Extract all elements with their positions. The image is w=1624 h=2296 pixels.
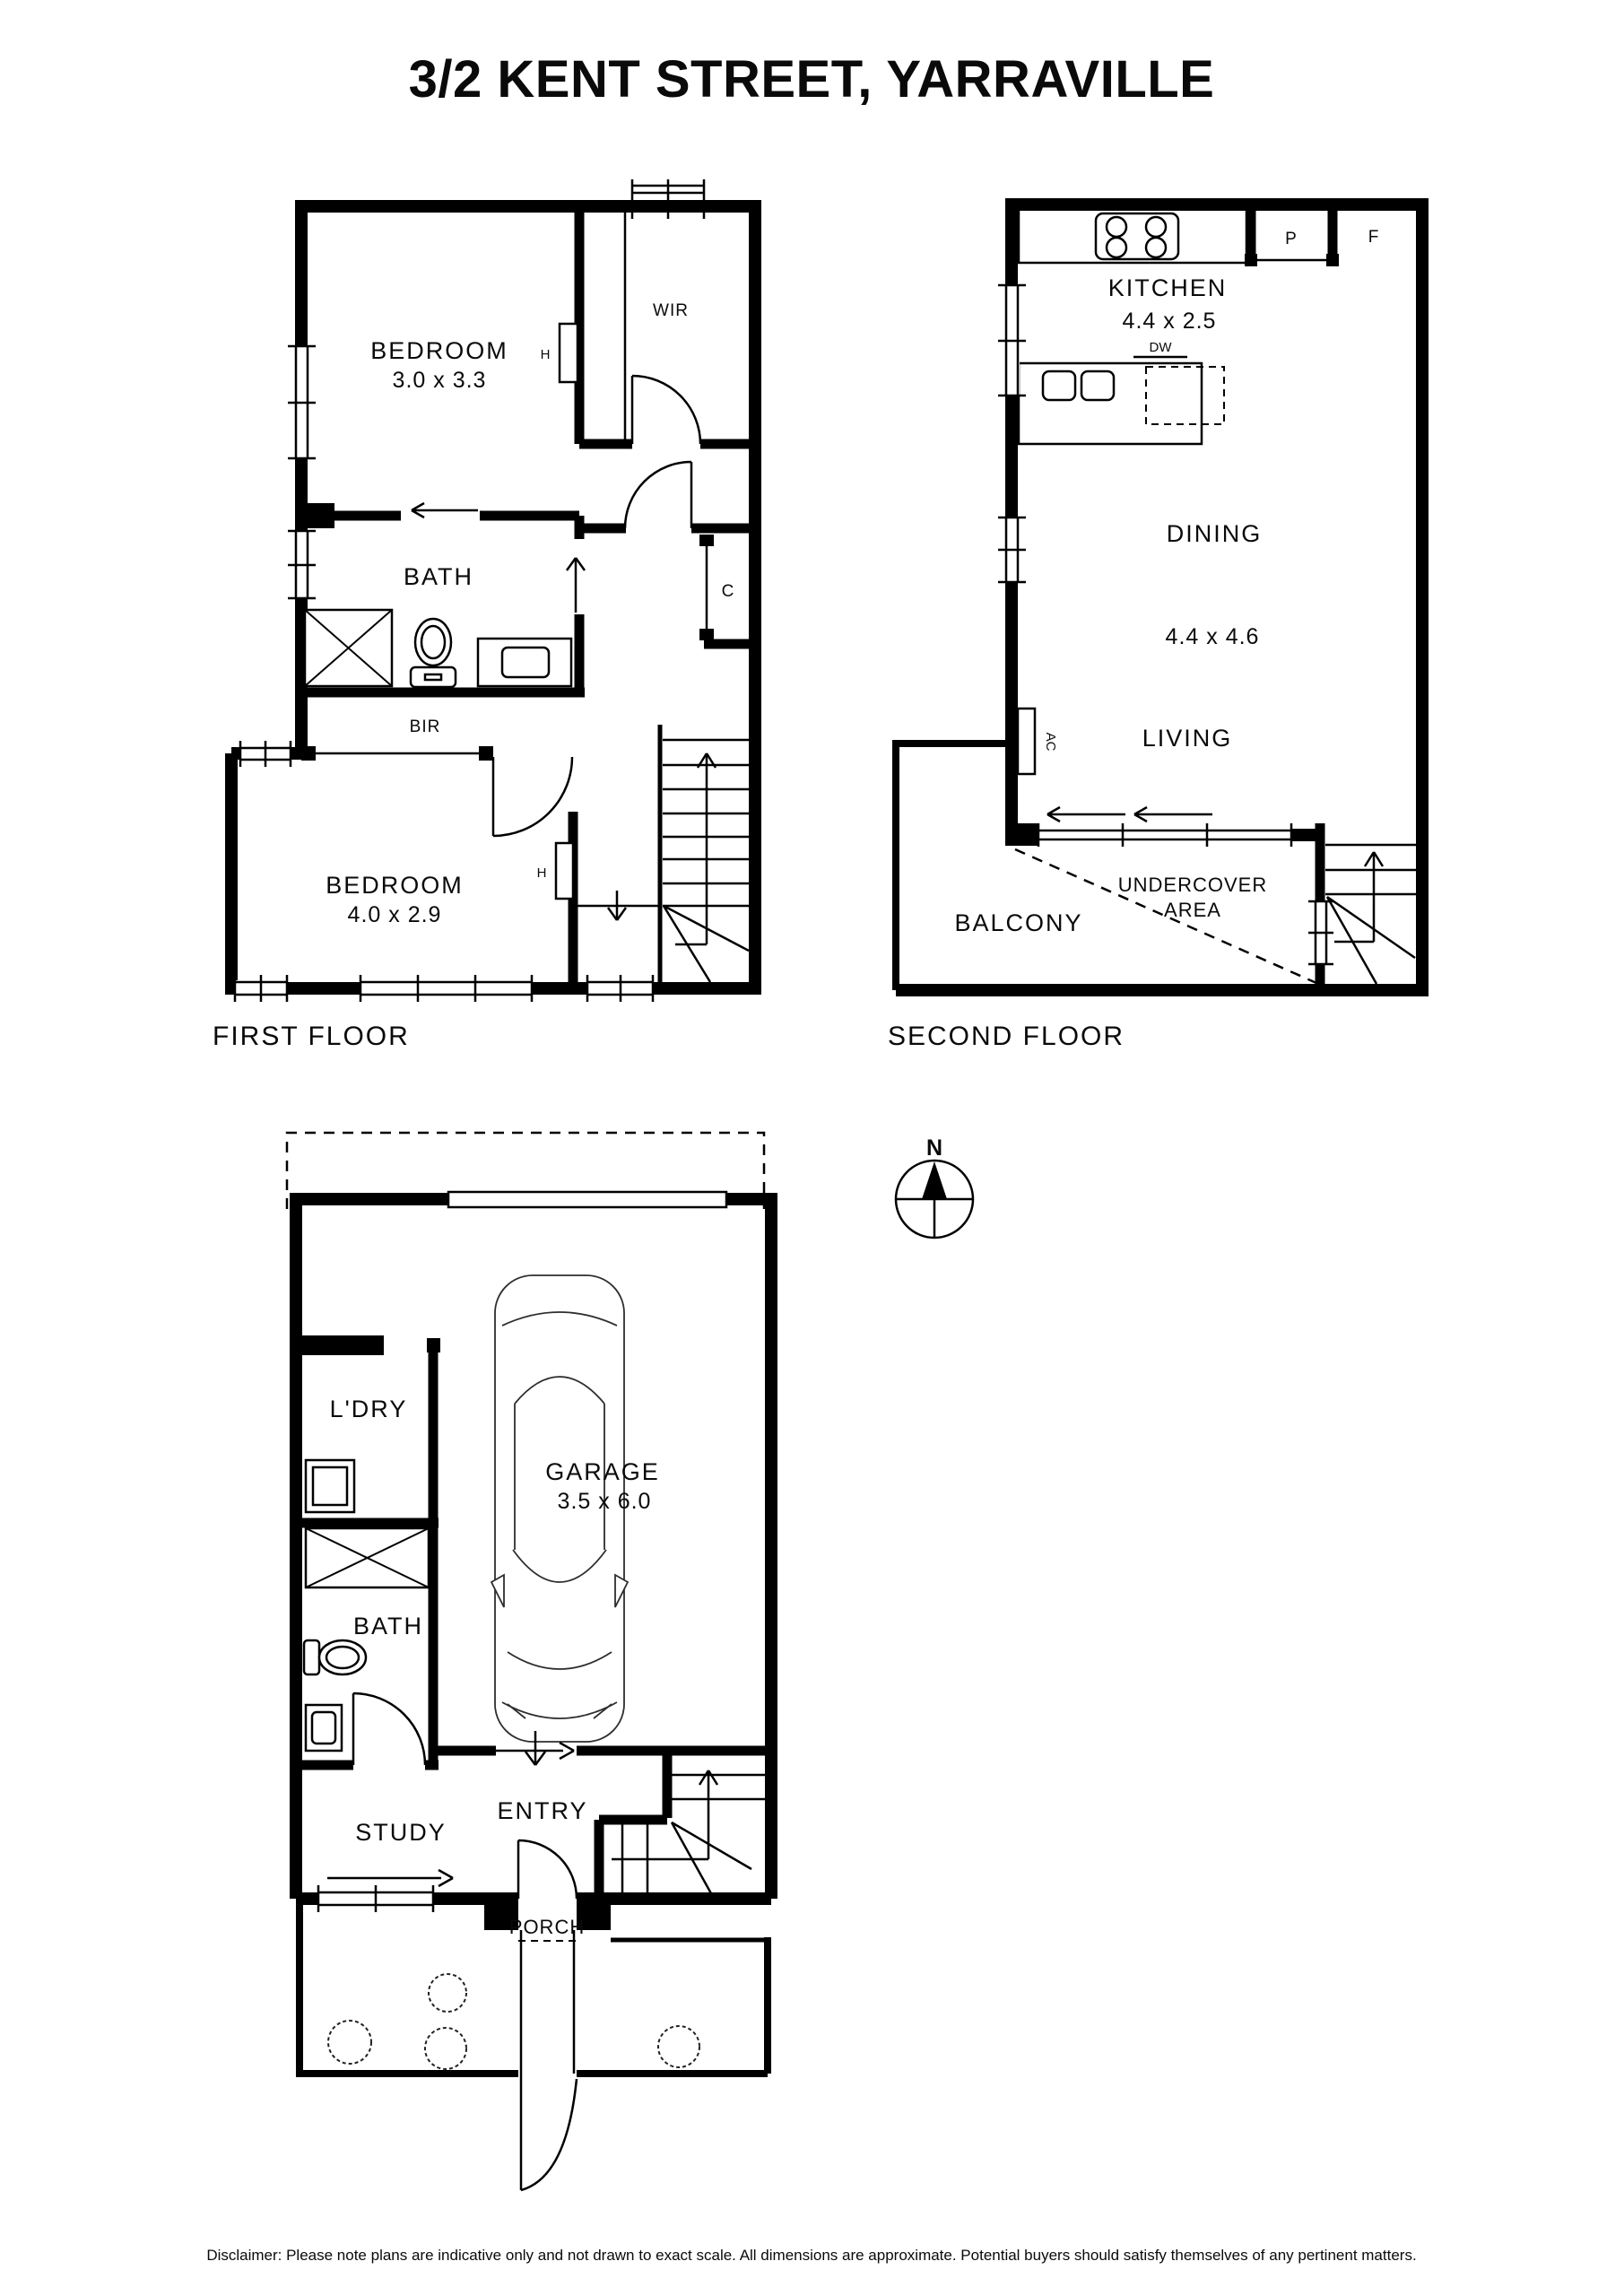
ground-floor-fixtures bbox=[304, 1460, 429, 1751]
pantry-label: P bbox=[1285, 230, 1298, 248]
undercover-label-2: AREA bbox=[1164, 899, 1221, 921]
toilet-icon bbox=[304, 1640, 366, 1674]
window bbox=[288, 531, 316, 598]
entry-arrow-up bbox=[567, 558, 585, 613]
front-door-arc bbox=[518, 1840, 577, 1899]
window-arrow-right bbox=[327, 1870, 453, 1886]
dining-label: DINING bbox=[1167, 520, 1263, 547]
shrub-icon bbox=[429, 1974, 466, 2012]
bedroom1-label: BEDROOM bbox=[370, 337, 508, 364]
window bbox=[632, 179, 704, 219]
window bbox=[360, 975, 532, 1002]
hanging-label: H bbox=[541, 347, 551, 362]
garage-door bbox=[448, 1190, 726, 1208]
kitchen-dims: 4.4 x 2.5 bbox=[1123, 309, 1217, 334]
study-window bbox=[318, 1870, 453, 1912]
bedroom2-label: BEDROOM bbox=[326, 872, 464, 899]
balcony-walls bbox=[896, 744, 1012, 990]
stairs-up-arrow bbox=[699, 1770, 717, 1859]
window bbox=[998, 517, 1026, 582]
slide-arrow-left bbox=[1047, 807, 1125, 822]
porch-label: PORCH bbox=[509, 1916, 585, 1938]
first-floor-caption: FIRST FLOOR bbox=[213, 1022, 410, 1051]
ground-floor-staircase bbox=[599, 1751, 765, 1899]
ground-floor-plan: L'DRY GARAGE 3.5 x 6.0 BATH STUDY ENTRY … bbox=[287, 1133, 771, 2190]
bedroom2-door-arc bbox=[493, 757, 572, 836]
hall-door-arc bbox=[625, 462, 691, 528]
second-floor-staircase bbox=[1308, 823, 1416, 985]
shower-icon bbox=[305, 610, 392, 686]
window bbox=[587, 975, 653, 1002]
shrub-icon bbox=[425, 2028, 466, 2069]
kitchen-bench bbox=[1019, 211, 1246, 263]
window bbox=[1308, 901, 1333, 964]
laundry-sink-icon bbox=[306, 1460, 354, 1512]
disclaimer-text: Disclaimer: Please note plans are indica… bbox=[206, 2247, 1416, 2264]
porch-path bbox=[521, 1930, 574, 2074]
fridge-label: F bbox=[1368, 228, 1380, 247]
undercover-label-1: UNDERCOVER bbox=[1118, 874, 1267, 896]
toilet-icon bbox=[411, 619, 456, 687]
entry-label: ENTRY bbox=[497, 1797, 587, 1824]
compass-icon: N bbox=[896, 1135, 973, 1238]
entry-arrow-right bbox=[489, 1743, 574, 1759]
bath-door-arc bbox=[353, 1693, 425, 1765]
study-label: STUDY bbox=[355, 1819, 447, 1846]
bedroom1-dims: 3.0 x 3.3 bbox=[393, 368, 487, 393]
window bbox=[288, 346, 316, 458]
garage-dims: 3.5 x 6.0 bbox=[558, 1489, 652, 1514]
ground-bath-label: BATH bbox=[353, 1613, 423, 1639]
second-floor-plan: KITCHEN 4.4 x 2.5 P F DW DINING 4.4 x 4.… bbox=[888, 204, 1422, 1051]
ac-unit bbox=[1018, 709, 1035, 774]
entry-arrow-left bbox=[412, 503, 478, 517]
living-dining-dims: 4.4 x 4.6 bbox=[1166, 624, 1260, 649]
window bbox=[240, 741, 291, 767]
slide-arrow-left bbox=[1134, 807, 1212, 822]
shrub-icon bbox=[658, 2026, 699, 2067]
wir-door-arc bbox=[632, 376, 700, 444]
laundry-label: L'DRY bbox=[330, 1396, 408, 1422]
first-floor-plan: BEDROOM 3.0 x 3.3 WIR H BATH BIR C H BED… bbox=[213, 179, 755, 1051]
first-floor-bath-fixtures bbox=[305, 610, 571, 687]
gate-door-arc bbox=[521, 2074, 577, 2190]
bath-sink-icon bbox=[306, 1705, 342, 1751]
wir-label: WIR bbox=[653, 301, 689, 320]
bir-label: BIR bbox=[410, 717, 441, 736]
first-floor-staircase bbox=[577, 725, 749, 982]
hanging-label: H bbox=[537, 865, 547, 881]
balcony-sliding-door bbox=[1038, 807, 1320, 847]
compass-north-label: N bbox=[926, 1135, 942, 1161]
floor-plan-page: 3/2 KENT STREET, YARRAVILLE bbox=[0, 0, 1624, 2296]
garage-label: GARAGE bbox=[545, 1458, 660, 1485]
second-floor-caption: SECOND FLOOR bbox=[888, 1022, 1125, 1051]
bath-label: BATH bbox=[404, 563, 473, 590]
ac-label: AC bbox=[1043, 733, 1058, 752]
kitchen-label: KITCHEN bbox=[1108, 274, 1228, 301]
cooktop-icon bbox=[1096, 213, 1178, 259]
page-title: 3/2 KENT STREET, YARRAVILLE bbox=[409, 50, 1215, 109]
shrub-icon bbox=[328, 2021, 371, 2064]
living-label: LIVING bbox=[1142, 725, 1233, 752]
cupboard-label: C bbox=[722, 582, 735, 601]
floor-plan-canvas: 3/2 KENT STREET, YARRAVILLE bbox=[0, 0, 1624, 2296]
balcony-label: BALCONY bbox=[954, 909, 1082, 936]
window bbox=[235, 975, 287, 1002]
vanity-icon bbox=[478, 639, 571, 686]
dishwasher-label: DW bbox=[1150, 340, 1173, 355]
shower-icon bbox=[306, 1528, 429, 1587]
island-bench bbox=[1019, 357, 1224, 444]
bedroom2-dims: 4.0 x 2.9 bbox=[348, 902, 442, 927]
